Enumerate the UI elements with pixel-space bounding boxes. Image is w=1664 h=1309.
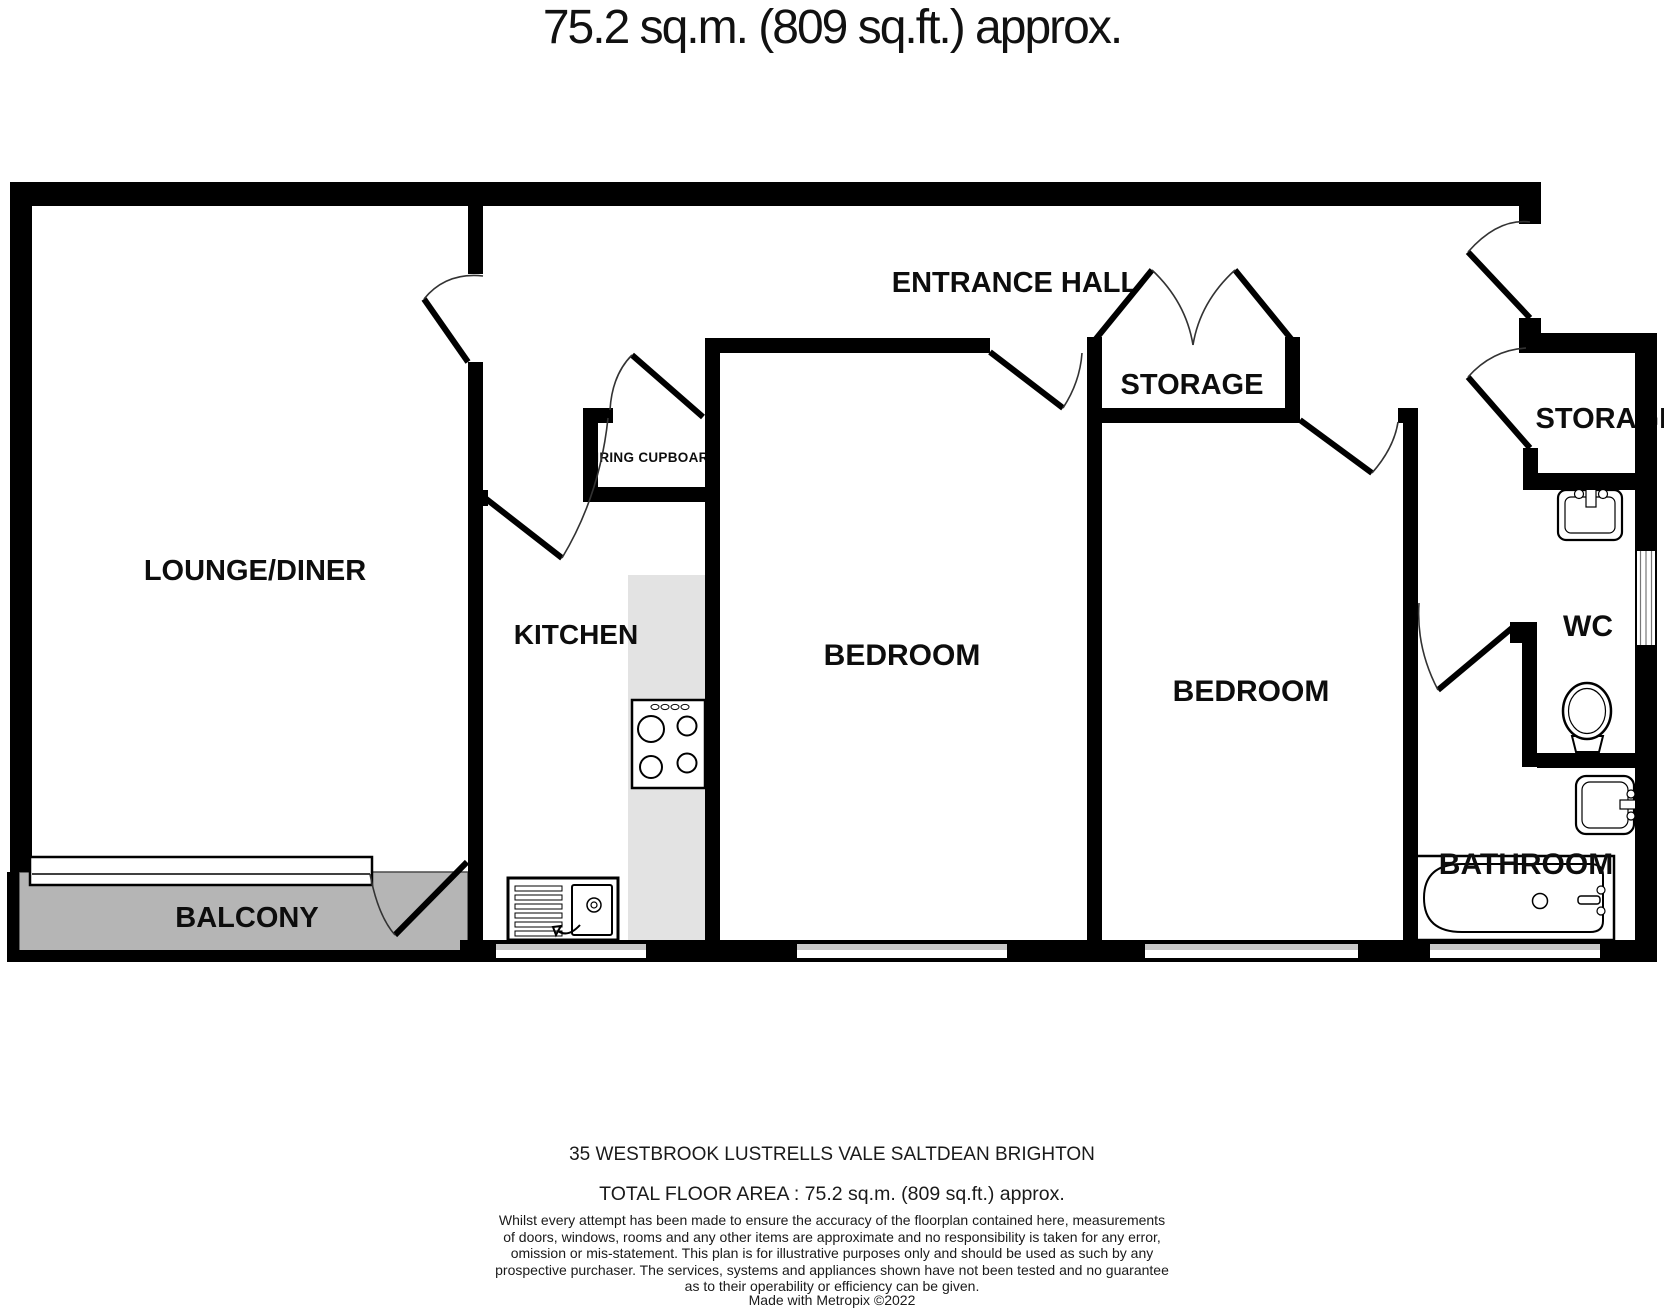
door-leaves <box>395 252 1530 935</box>
bedroom1-window <box>797 944 1007 958</box>
wall <box>1087 337 1102 940</box>
wall <box>7 872 19 962</box>
wc-side-window <box>1637 551 1655 645</box>
wall <box>705 338 990 353</box>
floorplan-page: 75.2 sq.m. (809 sq.ft.) approx. <box>0 0 1664 1309</box>
room-label-balcony: BALCONY <box>175 902 318 934</box>
storage-door-right-leaf <box>1235 270 1292 340</box>
wall <box>583 487 718 502</box>
wall <box>1087 408 1300 423</box>
room-label-entrance-hall: ENTRANCE HALL <box>892 267 1139 299</box>
wall <box>705 338 720 940</box>
wall <box>1523 473 1635 490</box>
door-arc <box>1193 270 1235 345</box>
wall <box>1635 333 1657 962</box>
room-label-bathroom: BATHROOM <box>1439 848 1613 881</box>
footer-address: 35 WESTBROOK LUSTRELLS VALE SALTDEAN BRI… <box>0 1144 1664 1166</box>
room-label-bedroom-2: BEDROOM <box>1173 675 1330 708</box>
footer-total-area: TOTAL FLOOR AREA : 75.2 sq.m. (809 sq.ft… <box>0 1183 1664 1206</box>
kitchen-door-leaf <box>485 498 562 558</box>
room-label-kitchen: KITCHEN <box>514 619 638 650</box>
floorplan-drawing: LOUNGE/DINER KITCHEN ENTRANCE HALL AIRIN… <box>0 0 1664 1309</box>
bathroom-window <box>1430 944 1600 958</box>
door-arc <box>1468 348 1526 377</box>
storage-right-door-leaf <box>1468 377 1530 448</box>
room-label-airing-cupboard: AIRING CUPBOARD <box>585 450 719 465</box>
door-arc <box>1468 222 1530 252</box>
wall <box>1403 408 1418 940</box>
door-arc <box>1372 422 1398 473</box>
room-label-storage-hall: STORAGE <box>1121 369 1264 401</box>
door-arc <box>1419 603 1438 690</box>
door-arc <box>424 275 483 299</box>
wall <box>10 182 32 872</box>
door-arc <box>1152 270 1193 345</box>
wall <box>7 950 480 962</box>
doors <box>370 222 1530 935</box>
wall <box>1522 622 1537 767</box>
room-label-bedroom-1: BEDROOM <box>824 639 981 672</box>
wall <box>1537 753 1657 768</box>
bedroom2-window <box>1145 944 1358 958</box>
bathroom-basin-icon <box>1576 776 1636 834</box>
wall <box>10 182 1541 206</box>
bedroom1-door-leaf <box>990 352 1063 408</box>
footer-disclaimer: Whilst every attempt has been made to en… <box>0 1212 1664 1295</box>
door-arc <box>1063 353 1082 408</box>
entrance-door-leaf <box>1468 252 1530 318</box>
room-label-wc: WC <box>1563 610 1613 643</box>
balcony-window <box>30 857 372 885</box>
door-arc <box>610 355 632 410</box>
stove-icon <box>632 700 705 788</box>
footer-credit: Made with Metropix ©2022 <box>0 1292 1664 1308</box>
room-label-lounge-diner: LOUNGE/DINER <box>144 555 366 587</box>
wall <box>468 206 483 274</box>
wall <box>468 362 483 950</box>
wc-basin-icon <box>1558 487 1622 540</box>
kitchen-window <box>496 944 646 958</box>
kitchen-sink-icon <box>508 878 618 940</box>
room-labels: LOUNGE/DINER KITCHEN ENTRANCE HALL AIRIN… <box>144 267 1664 934</box>
wc-door-leaf <box>1438 628 1512 690</box>
bedroom2-door-leaf <box>1300 420 1372 473</box>
airing-cupboard-door-leaf <box>632 355 703 417</box>
toilet-icon <box>1563 683 1611 752</box>
lounge-door-leaf <box>424 299 468 362</box>
door-arcs <box>370 222 1530 935</box>
